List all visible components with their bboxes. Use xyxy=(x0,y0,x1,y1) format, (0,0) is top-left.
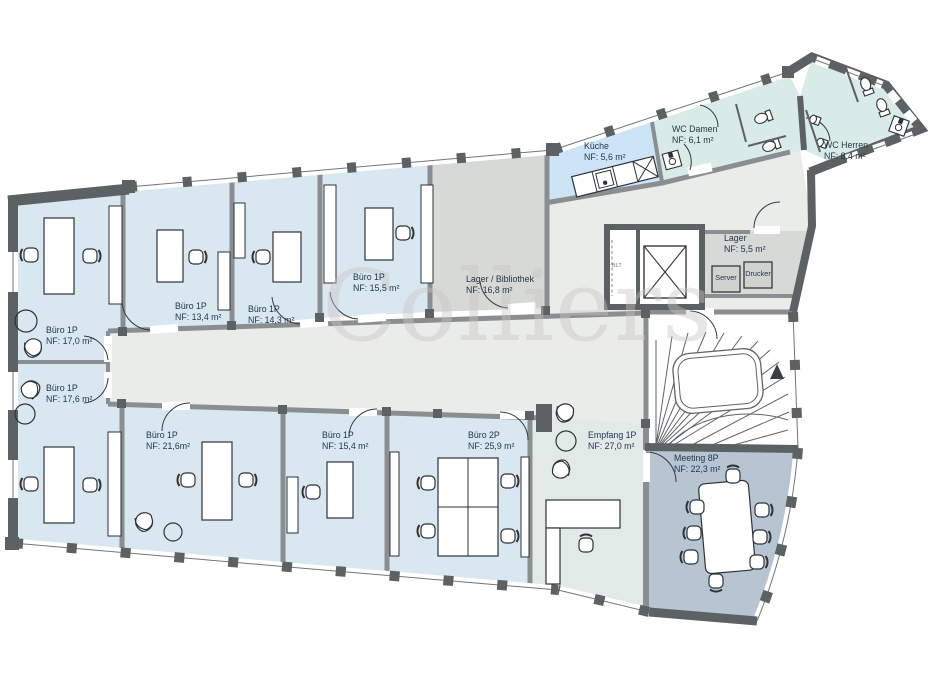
reception-wall-stub xyxy=(536,404,552,432)
label-blt: BLT xyxy=(612,263,622,269)
label-kueche: KücheNF: 5,6 m² xyxy=(584,141,626,162)
floor-plan-svg xyxy=(0,0,934,675)
label-buero-15-4: Büro 1PNF: 15,4 m² xyxy=(322,430,368,451)
label-wc-herren: WC HerrenNF: 8,4 m² xyxy=(824,140,868,161)
label-wc-damen: WC DamenNF: 6,1 m² xyxy=(672,124,717,145)
floor-plan: Colliers Büro 1PNF: 17,0 m² Büro 1PNF: 1… xyxy=(0,0,934,675)
label-lager: LagerNF: 5,5 m² xyxy=(724,233,766,254)
label-empfang: Empfang 1PNF: 27,0 m² xyxy=(588,430,636,451)
label-buero-14-3: Büro 1PNF: 14,3 m² xyxy=(248,304,294,325)
label-meeting: Meeting 8PNF: 22,3 m² xyxy=(674,453,720,474)
label-drucker: Drucker xyxy=(738,270,778,277)
label-buero-13-4: Büro 1PNF: 13,4 m² xyxy=(175,301,221,322)
label-buero-17-6: Büro 1PNF: 17,6 m² xyxy=(46,383,92,404)
label-buero-15-5: Büro 1PNF: 15,5 m² xyxy=(353,272,399,293)
label-buero-21-6: Büro 1PNF: 21,6m² xyxy=(146,430,190,451)
label-buero-2p: Büro 2PNF: 25,9 m² xyxy=(468,430,514,451)
label-lager-bibliothek: Lager / BibliothekNF: 16,8 m² xyxy=(466,274,534,295)
label-buero-17-0: Büro 1PNF: 17,0 m² xyxy=(46,325,92,346)
